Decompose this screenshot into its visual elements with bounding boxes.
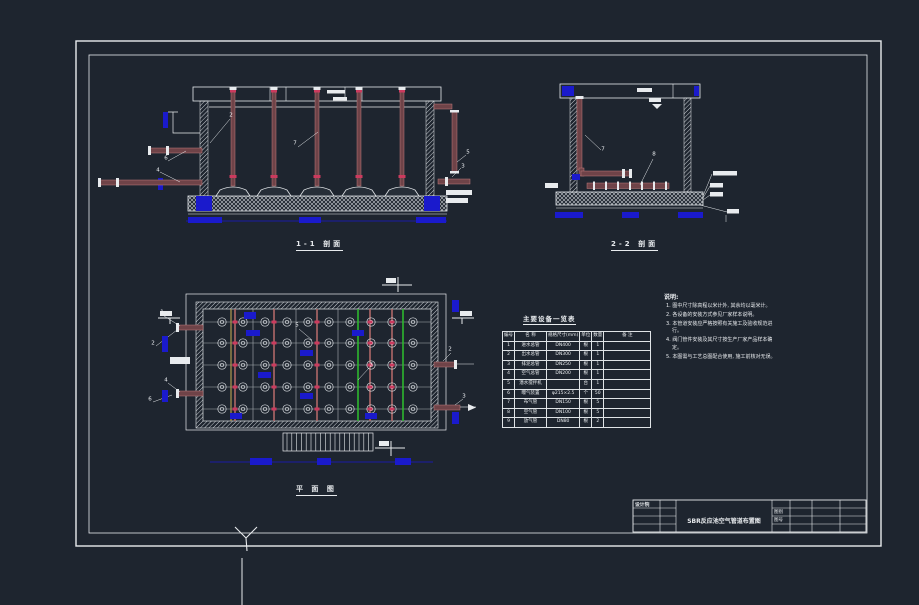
weir-teeth bbox=[287, 433, 369, 451]
table-cell: 9 bbox=[503, 418, 515, 428]
plan-outlet-bottom bbox=[434, 405, 460, 410]
table-cell: 4 bbox=[503, 370, 515, 380]
table-cell: DN200 bbox=[547, 370, 580, 380]
plan-inlet-lower bbox=[178, 391, 203, 396]
label-text-blob bbox=[446, 190, 472, 195]
air-riser-pipes bbox=[216, 87, 419, 196]
title-block-drawing-title: SBR反应池空气管道布置图 bbox=[676, 516, 772, 525]
table-cell: 潜水搅拌机 bbox=[515, 379, 547, 389]
right-wall bbox=[426, 101, 434, 196]
title-block-sheet-no-label: 图号 bbox=[774, 517, 783, 523]
table-cell: DN400 bbox=[547, 341, 580, 351]
dimension-text-blob bbox=[678, 212, 703, 218]
callout-number: 2 bbox=[229, 113, 233, 119]
table-cell: 根 bbox=[580, 341, 592, 351]
table-cell: 1 bbox=[503, 341, 515, 351]
callout-number: 4 bbox=[164, 378, 168, 384]
table-cell: 2 bbox=[503, 351, 515, 361]
table-cell: 个 bbox=[580, 389, 592, 399]
dimension-text-blob bbox=[555, 212, 583, 218]
notes-heading: 说明: bbox=[664, 292, 782, 301]
elevation-text-blob bbox=[649, 98, 661, 102]
note-item: 1. 图中尺寸除高程以米计外, 其余均以毫米计。 bbox=[672, 303, 782, 311]
callout-number: 8 bbox=[652, 152, 656, 158]
table-cell: 1 bbox=[592, 379, 604, 389]
level-symbol bbox=[652, 104, 662, 109]
table-cell: 3 bbox=[503, 360, 515, 370]
table-row: 8空气管DN100根5 bbox=[503, 408, 651, 418]
table-cell: 进水总管 bbox=[515, 341, 547, 351]
table-cell: 根 bbox=[580, 370, 592, 380]
table-header-cell: 名 称 bbox=[515, 332, 547, 342]
layer-label-blob bbox=[713, 171, 737, 176]
inlet-pipe-lower bbox=[100, 180, 202, 185]
callout-number: 7 bbox=[601, 147, 605, 153]
table-cell: 台 bbox=[580, 379, 592, 389]
table-row: 1进水总管DN400根1 bbox=[503, 341, 651, 351]
table-row: 7布气管DN150根5 bbox=[503, 399, 651, 409]
table-cell bbox=[604, 341, 651, 351]
table-header-cell: 编号 bbox=[503, 332, 515, 342]
table-cell: 5 bbox=[592, 408, 604, 418]
callout-number: 4 bbox=[156, 168, 160, 174]
table-cell: 1 bbox=[592, 341, 604, 351]
floor-air-main bbox=[587, 183, 669, 189]
table-cell bbox=[604, 418, 651, 428]
callout-number: 2 bbox=[151, 341, 155, 347]
table-cell bbox=[604, 389, 651, 399]
table-cell bbox=[604, 399, 651, 409]
elevation-text-blob bbox=[333, 97, 347, 101]
callout-number: 6 bbox=[164, 156, 168, 162]
table-cell: 空气总管 bbox=[515, 370, 547, 380]
table-cell bbox=[604, 370, 651, 380]
table-header-cell: 数量 bbox=[592, 332, 604, 342]
table-header-cell: 单位 bbox=[580, 332, 592, 342]
label-text-blob bbox=[545, 183, 558, 188]
table-cell: 根 bbox=[580, 351, 592, 361]
table-cell bbox=[547, 379, 580, 389]
table-cell: 6 bbox=[503, 389, 515, 399]
callout-number: 6 bbox=[148, 397, 152, 403]
layer-label-blob bbox=[710, 192, 723, 197]
table-cell: φ215×2.5 bbox=[547, 389, 580, 399]
scum-trough bbox=[168, 112, 200, 133]
table-cell: DN250 bbox=[547, 360, 580, 370]
cut-label-blob bbox=[460, 311, 472, 316]
note-item: 4. 阀门管件安装及其尺寸按生产厂家产品样本确定。 bbox=[672, 337, 782, 353]
callout-number: 1 bbox=[160, 310, 164, 316]
table-cell: 根 bbox=[580, 360, 592, 370]
cut-label-blob bbox=[386, 278, 396, 283]
table-cell: 50 bbox=[592, 389, 604, 399]
dimension-text-blob bbox=[622, 212, 639, 218]
equipment-table-body: 1进水总管DN400根12出水总管DN300根13排泥总管DN250根14空气总… bbox=[503, 341, 651, 427]
table-cell: 1 bbox=[592, 370, 604, 380]
section-2-2-title: 2-2 剖面 bbox=[611, 239, 658, 251]
plan-linework bbox=[153, 277, 476, 465]
callout-number: 5 bbox=[466, 150, 470, 156]
note-item: 5. 本图需与工艺总图配合使用, 施工前核对无误。 bbox=[672, 354, 782, 362]
notes-items: 1. 图中尺寸除高程以米计外, 其余均以毫米计。2. 各设备的安装方式参见厂家样… bbox=[664, 303, 782, 361]
table-cell bbox=[604, 351, 651, 361]
title-block-org: 设计院 bbox=[635, 501, 649, 508]
table-row: 3排泥总管DN250根1 bbox=[503, 360, 651, 370]
dimension-text-blob bbox=[188, 217, 222, 223]
table-cell: DN100 bbox=[547, 408, 580, 418]
layer-leader-lines bbox=[700, 174, 727, 222]
section-2-2-linework bbox=[545, 84, 739, 222]
table-cell: 空气管 bbox=[515, 408, 547, 418]
table-cell: 1 bbox=[592, 360, 604, 370]
cut-label-blob bbox=[379, 441, 389, 446]
floor-slab bbox=[188, 196, 447, 211]
leader-lines bbox=[585, 135, 653, 185]
table-cell bbox=[604, 408, 651, 418]
elevation-text-blob bbox=[327, 90, 345, 94]
callout-number: 5 bbox=[295, 323, 299, 329]
plan-inlet-upper bbox=[178, 325, 203, 330]
down-pipe bbox=[577, 98, 582, 170]
callout-number: 7 bbox=[369, 363, 373, 369]
table-cell: DN80 bbox=[547, 418, 580, 428]
table-header-cell: 备 注 bbox=[604, 332, 651, 342]
table-cell: 5 bbox=[503, 379, 515, 389]
elevation-text-blob bbox=[637, 88, 652, 92]
floor-slab bbox=[556, 192, 703, 205]
section-1-1-linework bbox=[98, 87, 472, 223]
table-row: 6曝气装置φ215×2.5个50 bbox=[503, 389, 651, 399]
table-cell bbox=[604, 379, 651, 389]
dimension-text-blob bbox=[416, 217, 446, 223]
callout-number: 3 bbox=[461, 164, 465, 170]
table-row: 5潜水搅拌机台1 bbox=[503, 379, 651, 389]
table-cell: 放气管 bbox=[515, 418, 547, 428]
break-mark bbox=[235, 527, 257, 551]
table-cell: 根 bbox=[580, 418, 592, 428]
dimension-text-blob bbox=[299, 217, 321, 223]
table-cell: 根 bbox=[580, 399, 592, 409]
note-item: 2. 各设备的安装方式参见厂家样本说明。 bbox=[672, 312, 782, 320]
table-header-cell: 规格尺寸(mm) bbox=[547, 332, 580, 342]
table-cell: 7 bbox=[503, 399, 515, 409]
plan-title: 平 面 图 bbox=[296, 484, 337, 496]
table-cell: DN300 bbox=[547, 351, 580, 361]
table-cell: 出水总管 bbox=[515, 351, 547, 361]
equipment-table-header: 编号名 称规格尺寸(mm)单位数量备 注 bbox=[503, 332, 651, 342]
external-riser bbox=[452, 112, 457, 172]
table-cell: 根 bbox=[580, 408, 592, 418]
flow-arrow bbox=[468, 404, 476, 411]
section-1-1-title: 1-1 剖面 bbox=[296, 239, 343, 251]
table-cell: 布气管 bbox=[515, 399, 547, 409]
callout-number: 3 bbox=[462, 394, 466, 400]
layer-label-blob bbox=[727, 209, 739, 214]
equipment-table-title: 主要设备一览表 bbox=[523, 313, 576, 325]
callout-number: 7 bbox=[293, 141, 297, 147]
table-row: 4空气总管DN200根1 bbox=[503, 370, 651, 380]
table-cell bbox=[604, 360, 651, 370]
table-cell: 2 bbox=[592, 418, 604, 428]
cad-drawing-canvas[interactable]: 1-1 剖面 2-2 剖面 平 面 图 主要设备一览表 编号名 称规格尺寸(mm… bbox=[0, 0, 919, 605]
table-row: 2出水总管DN300根1 bbox=[503, 351, 651, 361]
right-wall bbox=[684, 98, 691, 192]
table-row: 9放气管DN80根2 bbox=[503, 418, 651, 428]
table-cell: 排泥总管 bbox=[515, 360, 547, 370]
label-text-blob bbox=[170, 357, 190, 364]
plan-outlet-mid bbox=[434, 362, 456, 367]
table-cell: 1 bbox=[592, 351, 604, 361]
table-cell: 曝气装置 bbox=[515, 389, 547, 399]
note-item: 3. 本管道安装应严格按照有关施工及验收规范进行。 bbox=[672, 321, 782, 337]
table-cell: 8 bbox=[503, 408, 515, 418]
label-text-blob bbox=[446, 198, 468, 203]
notes-block: 说明: 1. 图中尺寸除高程以米计外, 其余均以毫米计。2. 各设备的安装方式参… bbox=[664, 292, 782, 362]
table-cell: 5 bbox=[592, 399, 604, 409]
equipment-table: 编号名 称规格尺寸(mm)单位数量备 注 1进水总管DN400根12出水总管DN… bbox=[502, 331, 651, 428]
inlet-pipe-upper bbox=[150, 148, 202, 153]
title-block-sheet-type-label: 图别 bbox=[774, 509, 783, 515]
table-cell: DN150 bbox=[547, 399, 580, 409]
callout-number: 2 bbox=[448, 347, 452, 353]
layer-label-blob bbox=[710, 183, 723, 188]
